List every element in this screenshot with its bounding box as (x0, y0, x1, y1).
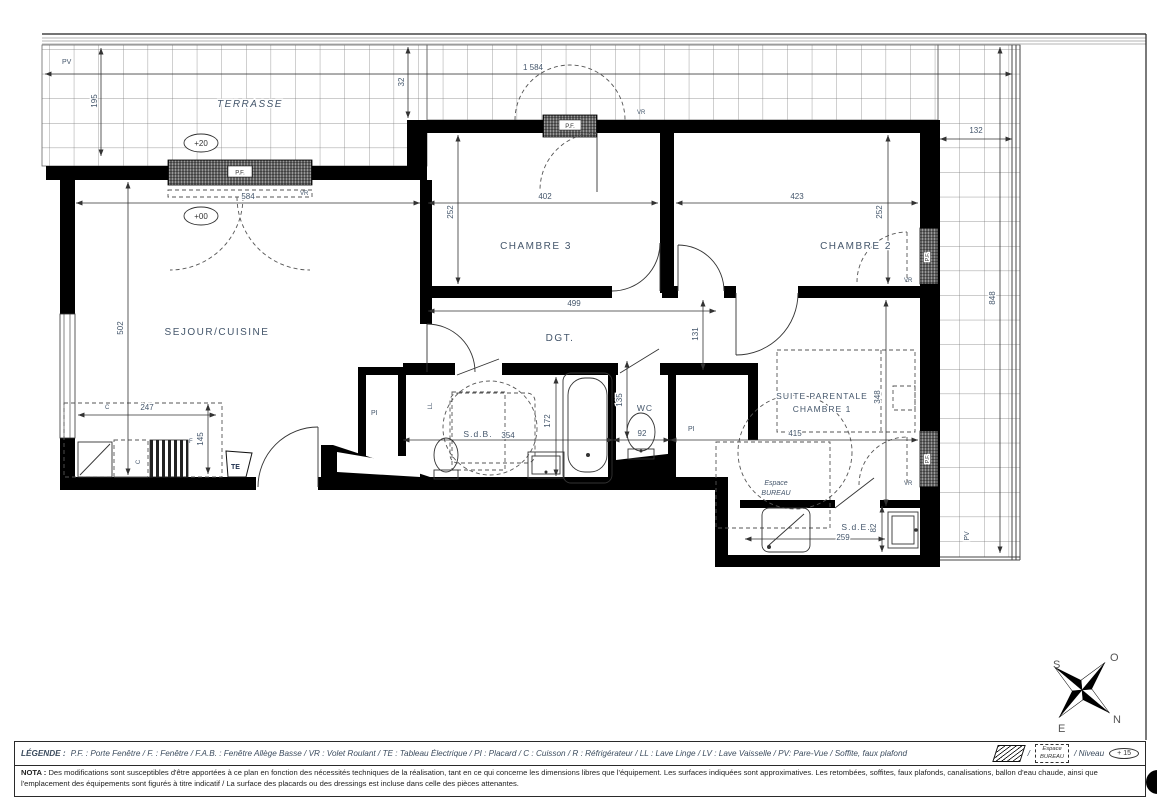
dim-terrasse-side-h: 848 (988, 291, 997, 305)
room-espace-2: BUREAU (761, 490, 791, 497)
pf-label: P.F. (235, 171, 245, 177)
bathroom-sdb: LL (428, 373, 612, 483)
room-terrasse: TERRASSE (217, 99, 283, 110)
dim-ch3-w: 402 (538, 192, 552, 201)
legend-niveau-label: / Niveau (1074, 749, 1104, 758)
legend-separator: / (1028, 749, 1030, 758)
pi-label-sejour: PI (371, 410, 378, 417)
dim-suite-w: 415 (788, 429, 802, 438)
compass-s: S (1053, 659, 1060, 671)
room-suite-2: CHAMBRE 1 (793, 404, 852, 414)
dim-ch2-w: 423 (790, 192, 804, 201)
nota-bar: NOTA : Des modifications sont susceptibl… (14, 766, 1146, 797)
dim-soffit: 32 (397, 77, 406, 86)
pf-label: P.F. (565, 124, 575, 130)
dim-terrasse-depth: 195 (90, 94, 99, 108)
room-sdb: S.d.B. (463, 429, 492, 439)
walls (46, 120, 940, 567)
dim-terrasse-width: 1 584 (523, 63, 544, 72)
nota-text: Des modifications sont susceptibles d'êt… (21, 768, 1098, 788)
legend-bar: LÉGENDE : P.F. : Porte Fenêtre / F. : Fe… (14, 741, 1146, 766)
espace-bureau-swatch: Espace BUREAU (1035, 744, 1069, 762)
compass: S O E N (1031, 639, 1132, 740)
vr-label: VR (904, 278, 913, 284)
pv-right-label: PV (964, 531, 971, 541)
pf-label: P.F. (925, 454, 931, 463)
compass-o: O (1110, 652, 1119, 664)
dim-terrasse-side-w: 132 (969, 126, 983, 135)
dim-sdb-w: 354 (501, 431, 515, 440)
dim-niche-d: 131 (691, 327, 700, 341)
dim-sdb-d: 172 (543, 414, 552, 428)
dim-ch2-d: 252 (875, 205, 884, 219)
level-terrasse: +20 (194, 139, 208, 148)
pv-top-label: PV (62, 59, 72, 66)
c-label: C (105, 405, 110, 411)
room-sejour: SEJOUR/CUISINE (165, 327, 270, 338)
legend-items: P.F. : Porte Fenêtre / F. : Fenêtre / F.… (71, 749, 990, 758)
compass-n: N (1113, 714, 1121, 726)
nota-title: NOTA : (21, 768, 46, 777)
dim-ch3-d: 252 (446, 205, 455, 219)
legend-title: LÉGENDE : (21, 749, 66, 758)
niveau-level-badge: + 15 (1109, 748, 1139, 759)
floor-plan: P.F. VR P.F. VR P.F. VR P.F. VR (0, 0, 1157, 740)
room-sde: S.d.E. (841, 522, 870, 532)
left-window (60, 314, 75, 438)
window-pf-suite: P.F. VR (859, 431, 938, 487)
room-espace-1: Espace (764, 480, 787, 487)
vr-label: VR (904, 481, 913, 487)
room-dgt: DGT. (546, 333, 575, 344)
dim-suite-d: 348 (873, 390, 882, 404)
pi-label-suite: PI (688, 426, 695, 433)
room-wc: WC (637, 403, 653, 413)
compass-e: E (1058, 723, 1065, 735)
ll-label: LL (428, 402, 434, 409)
dim-sde-w: 259 (836, 533, 850, 542)
dim-sejour-d: 502 (116, 321, 125, 335)
room-chambre2: CHAMBRE 2 (820, 241, 892, 252)
dim-kitchen-d: 145 (196, 432, 205, 446)
c-label: C (136, 459, 142, 464)
dim-dgt-w: 499 (567, 299, 581, 308)
dim-sejour-w: 584 (241, 192, 255, 201)
sde-fixtures (762, 508, 918, 552)
dim-wc-d: 135 (615, 393, 624, 407)
dim-kitchen-w: 247 (140, 403, 154, 412)
soffit-hatch-icon (992, 745, 1026, 762)
window-pf-chambre2: P.F. VR (857, 228, 938, 284)
f-label: F (189, 439, 193, 445)
level-sejour: +00 (194, 212, 208, 221)
kitchen: TE C C F (64, 403, 252, 477)
sheet-logo-circle (1146, 770, 1157, 794)
dim-wc-w: 92 (638, 429, 647, 438)
te-label: TE (231, 464, 240, 471)
vr-label: VR (637, 110, 646, 116)
room-suite-1: SUITE PARENTALE (776, 391, 868, 401)
vr-label: VR (300, 191, 309, 197)
room-chambre3: CHAMBRE 3 (500, 241, 572, 252)
pf-label: P.F. (925, 252, 931, 261)
